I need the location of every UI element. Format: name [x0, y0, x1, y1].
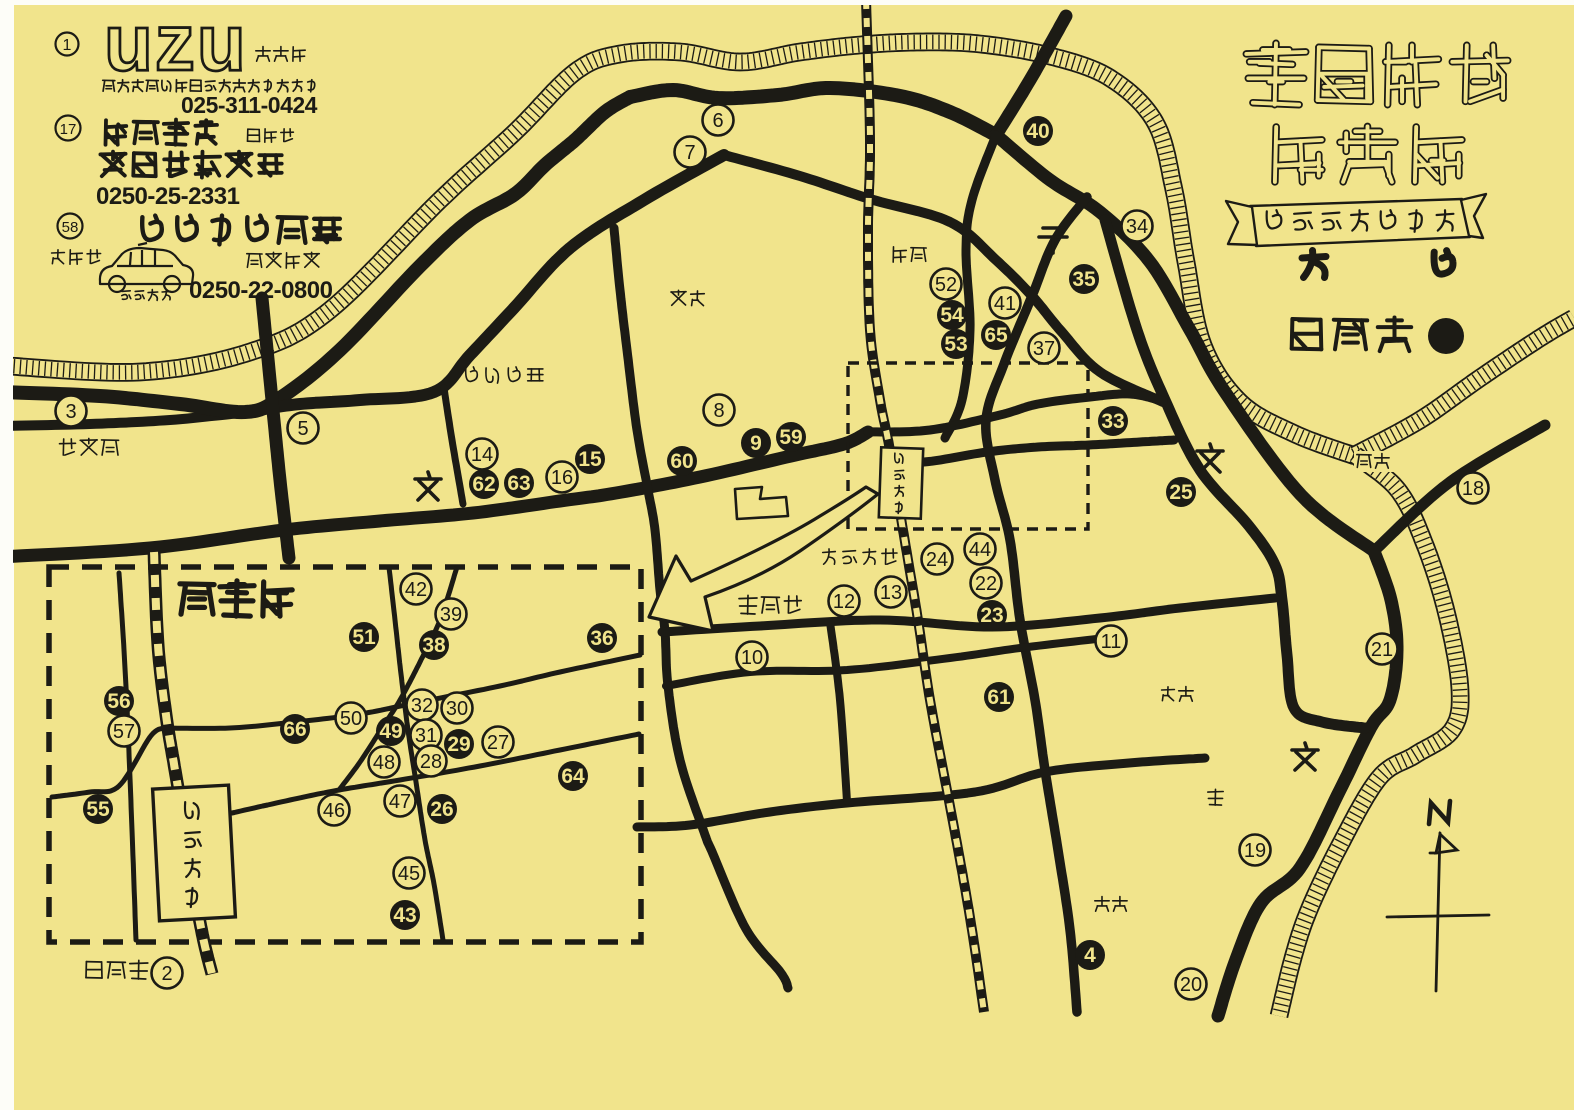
- svg-text:23: 23: [980, 604, 1003, 627]
- svg-text:36: 36: [590, 627, 613, 650]
- svg-text:49: 49: [379, 720, 402, 743]
- svg-text:025-311-0424: 025-311-0424: [181, 92, 318, 118]
- svg-text:40: 40: [1026, 120, 1049, 143]
- svg-text:64: 64: [561, 765, 585, 788]
- svg-text:4: 4: [1084, 944, 1096, 967]
- svg-text:29: 29: [447, 733, 470, 756]
- svg-text:52: 52: [935, 274, 957, 296]
- svg-text:10: 10: [741, 647, 763, 669]
- svg-text:25: 25: [1169, 481, 1193, 504]
- svg-text:11: 11: [1101, 631, 1122, 653]
- svg-text:7: 7: [684, 142, 695, 164]
- svg-text:50: 50: [340, 708, 362, 730]
- svg-text:41: 41: [994, 293, 1016, 315]
- svg-text:19: 19: [1244, 840, 1266, 862]
- svg-text:47: 47: [389, 791, 411, 813]
- svg-text:21: 21: [1371, 639, 1393, 661]
- svg-text:3: 3: [65, 401, 76, 423]
- svg-text:13: 13: [880, 582, 902, 604]
- svg-text:62: 62: [472, 473, 495, 496]
- svg-text:16: 16: [551, 467, 573, 489]
- svg-text:35: 35: [1072, 268, 1096, 291]
- svg-text:46: 46: [323, 800, 345, 822]
- svg-text:0250-22-0800: 0250-22-0800: [189, 277, 333, 304]
- svg-text:55: 55: [86, 798, 110, 821]
- svg-text:54: 54: [940, 304, 964, 327]
- svg-text:57: 57: [113, 721, 135, 743]
- svg-text:43: 43: [393, 904, 416, 927]
- svg-text:45: 45: [398, 863, 420, 885]
- svg-text:31: 31: [415, 725, 437, 747]
- svg-text:61: 61: [987, 686, 1011, 709]
- svg-text:26: 26: [430, 798, 453, 821]
- svg-text:58: 58: [62, 219, 79, 236]
- svg-text:30: 30: [446, 698, 468, 720]
- svg-text:5: 5: [297, 418, 308, 440]
- svg-text:60: 60: [670, 450, 693, 473]
- svg-text:44: 44: [969, 539, 991, 561]
- svg-text:34: 34: [1126, 216, 1148, 238]
- svg-text:1: 1: [63, 37, 72, 54]
- svg-text:65: 65: [984, 324, 1008, 347]
- svg-text:17: 17: [60, 121, 77, 138]
- svg-text:59: 59: [779, 426, 802, 449]
- svg-text:0250-25-2331: 0250-25-2331: [96, 183, 240, 210]
- svg-text:24: 24: [926, 549, 948, 571]
- svg-text:12: 12: [833, 591, 855, 613]
- svg-text:uzu: uzu: [104, 0, 248, 87]
- svg-text:14: 14: [471, 444, 493, 466]
- svg-text:42: 42: [405, 579, 427, 601]
- svg-text:39: 39: [440, 604, 462, 626]
- svg-text:20: 20: [1180, 974, 1202, 996]
- svg-text:9: 9: [750, 432, 762, 455]
- svg-text:33: 33: [1101, 410, 1124, 433]
- svg-text:32: 32: [411, 695, 433, 717]
- svg-text:27: 27: [487, 732, 509, 754]
- svg-text:38: 38: [422, 634, 446, 657]
- svg-text:63: 63: [507, 472, 530, 495]
- svg-text:48: 48: [373, 752, 395, 774]
- svg-text:2: 2: [161, 963, 172, 985]
- svg-text:53: 53: [944, 333, 967, 356]
- svg-text:51: 51: [352, 626, 376, 649]
- svg-text:66: 66: [283, 718, 306, 741]
- svg-text:28: 28: [420, 751, 442, 773]
- svg-text:15: 15: [578, 448, 602, 471]
- svg-text:6: 6: [712, 110, 723, 132]
- svg-text:22: 22: [975, 573, 997, 595]
- svg-text:56: 56: [107, 690, 130, 713]
- svg-text:37: 37: [1033, 338, 1055, 360]
- svg-text:8: 8: [713, 400, 724, 422]
- svg-text:18: 18: [1462, 478, 1484, 500]
